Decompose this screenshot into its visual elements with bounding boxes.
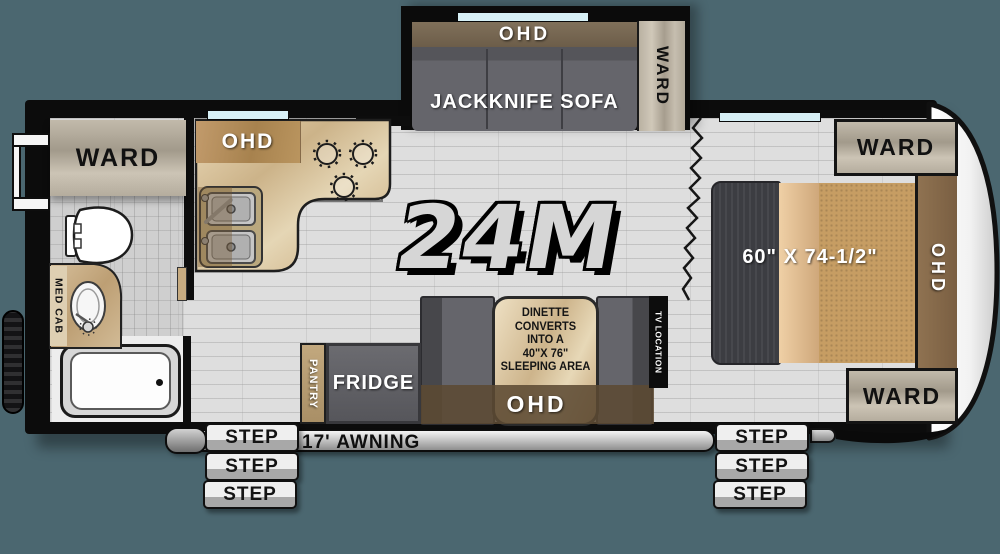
bed-size-label: 60" X 74-1/2" bbox=[700, 244, 920, 270]
toilet-icon bbox=[66, 208, 132, 263]
bumper-arm bbox=[12, 197, 50, 211]
bed-sheet bbox=[779, 183, 821, 363]
med-cab: MED CAB bbox=[50, 266, 67, 346]
entry-step: STEP bbox=[205, 423, 299, 452]
med-cab-label: MED CAB bbox=[50, 266, 67, 346]
floorplan-24m: OHD JACKKNIFE SOFA WARD bbox=[0, 0, 1000, 554]
dinette-note-line: INTO A bbox=[499, 333, 592, 347]
step-label: STEP bbox=[735, 427, 789, 449]
dinette-note-line: DINETTE bbox=[499, 306, 592, 320]
dinette-ohd-label: OHD bbox=[506, 391, 566, 418]
entry-step: STEP bbox=[713, 480, 807, 509]
dinette-note-line: SLEEPING AREA bbox=[499, 360, 592, 374]
privacy-curtain bbox=[683, 118, 702, 300]
kitchen-sink bbox=[198, 187, 262, 267]
bed-ohd-cabinet: OHD bbox=[915, 169, 957, 369]
bath-ward-label: WARD bbox=[50, 120, 186, 196]
entry-step: STEP bbox=[203, 480, 297, 509]
kitchen-ohd-label: OHD bbox=[222, 130, 275, 154]
tire-icon bbox=[2, 310, 24, 414]
awning-label: 17' AWNING bbox=[302, 432, 420, 454]
bath-wardrobe: WARD bbox=[50, 120, 186, 196]
pantry-label: PANTRY bbox=[302, 345, 324, 422]
bed-ohd-label: OHD bbox=[918, 169, 957, 369]
step-label: STEP bbox=[733, 484, 787, 506]
bedroom-wardrobe-bottom: WARD bbox=[846, 368, 958, 424]
bedroom-wardrobe-top: WARD bbox=[834, 119, 958, 176]
dinette-note-line: CONVERTS bbox=[499, 320, 592, 334]
fridge: FRIDGE bbox=[326, 343, 421, 424]
rear-bumper bbox=[12, 133, 52, 213]
model-label: 24M bbox=[340, 198, 675, 277]
dinette-note-line: 40"X 76" bbox=[499, 347, 592, 361]
entry-step: STEP bbox=[205, 452, 299, 481]
entry-step: STEP bbox=[715, 423, 809, 452]
tv-location: TV LOCATION bbox=[649, 296, 668, 388]
entry-step: STEP bbox=[715, 452, 809, 481]
kitchen-ohd-cabinet: OHD bbox=[196, 121, 301, 163]
bed-headboard bbox=[711, 181, 781, 365]
fridge-label: FRIDGE bbox=[329, 346, 418, 421]
bumper-arm bbox=[12, 133, 50, 147]
bedroom-window bbox=[719, 112, 821, 122]
step-label: STEP bbox=[225, 456, 279, 478]
pantry: PANTRY bbox=[300, 343, 326, 424]
awning-roller-end bbox=[165, 427, 207, 454]
tv-location-label: TV LOCATION bbox=[649, 296, 668, 388]
step-label: STEP bbox=[223, 484, 277, 506]
bedroom-ward-bottom-label: WARD bbox=[849, 371, 955, 421]
grab-handle bbox=[810, 428, 836, 443]
bed-mattress bbox=[819, 183, 919, 363]
dinette-ohd-cabinet: OHD bbox=[419, 385, 654, 424]
dinette-note: DINETTE CONVERTS INTO A 40"X 76" SLEEPIN… bbox=[499, 306, 592, 374]
bedroom-ward-top-label: WARD bbox=[837, 122, 955, 173]
step-label: STEP bbox=[225, 427, 279, 449]
kitchen-window bbox=[207, 110, 289, 120]
step-label: STEP bbox=[735, 456, 789, 478]
